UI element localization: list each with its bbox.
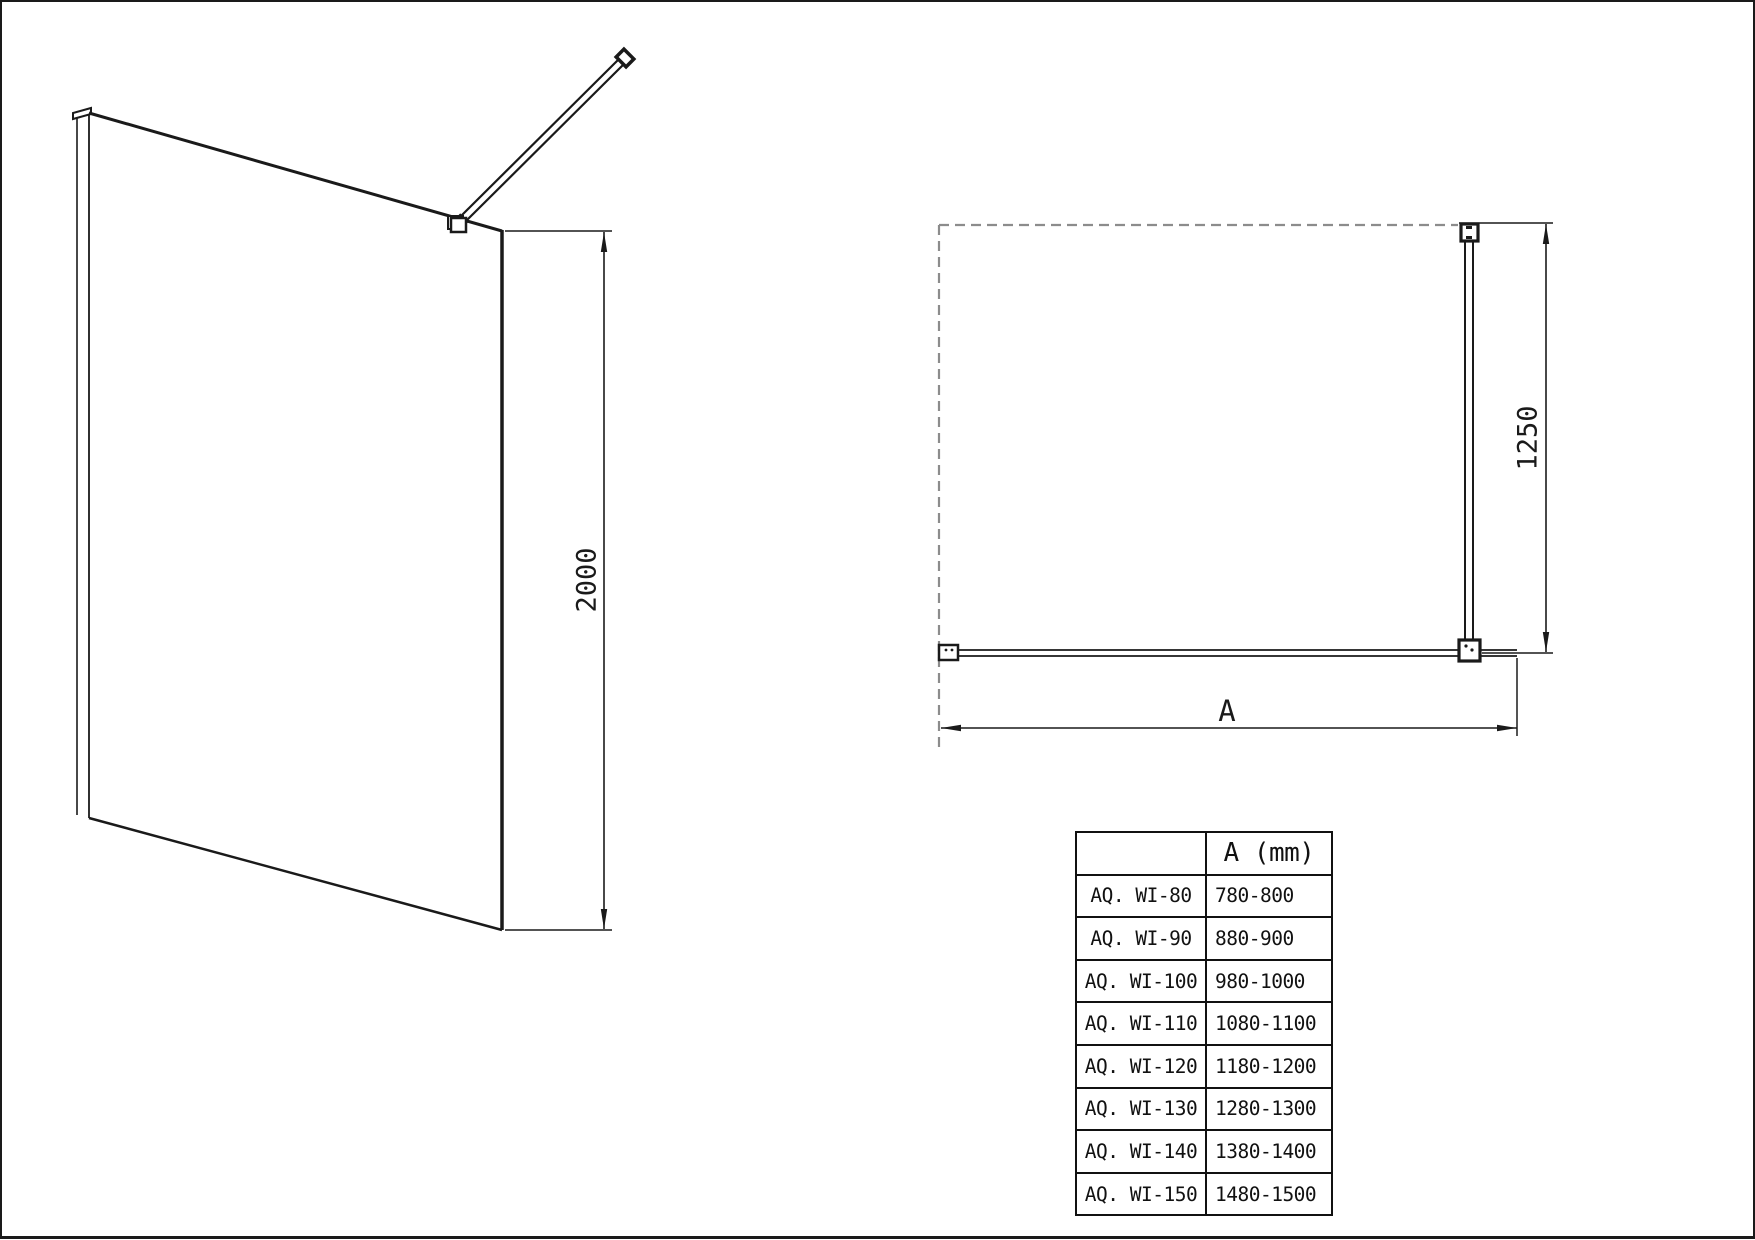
glass-panel-plan (941, 650, 1517, 656)
support-bar-wall-end-cap (616, 49, 634, 67)
wall-profile-screw-1 (945, 649, 948, 652)
table-header-row: A (mm) (1076, 832, 1332, 875)
wall-profile-plan (939, 645, 958, 660)
width-dimension: A (941, 658, 1517, 736)
depth-dim-label: 1250 (1513, 405, 1544, 470)
table-row: AQ. WI-130 1280-1300 (1076, 1088, 1332, 1131)
width-dim-arrow-right (1497, 725, 1517, 731)
glass-bracket-front (448, 216, 466, 232)
glass-bracket-plan (1459, 640, 1480, 661)
height-dim-arrow-down (601, 909, 607, 929)
technical-drawing-page: 2000 (0, 0, 1755, 1240)
depth-dim-arrow-up (1543, 224, 1549, 244)
table-header-model (1076, 832, 1206, 875)
table-cell-model: AQ. WI-140 (1076, 1130, 1206, 1173)
support-bar-lower-line (466, 61, 628, 222)
table-cell-range: 1080-1100 (1206, 1002, 1332, 1045)
glass-bottom-edge (89, 818, 502, 930)
table-cell-range: 880-900 (1206, 917, 1332, 960)
size-table: A (mm) AQ. WI-80 780-800 AQ. WI-90 880-9… (1075, 831, 1333, 1216)
height-dimension: 2000 (505, 231, 612, 930)
table-cell-model: AQ. WI-110 (1076, 1002, 1206, 1045)
glass-top-edge (89, 113, 502, 231)
table-cell-range: 1380-1400 (1206, 1130, 1332, 1173)
front-view: 2000 (73, 49, 634, 930)
tray-outline-dashed (939, 225, 1458, 752)
wall-bracket-plan (1461, 224, 1478, 241)
height-dim-arrow-up (601, 232, 607, 252)
drawing-canvas: 2000 (0, 0, 1755, 1240)
page-border (0, 1, 1755, 1238)
table-row: AQ. WI-120 1180-1200 (1076, 1045, 1332, 1088)
table-cell-model: AQ. WI-100 (1076, 960, 1206, 1003)
wall-profile-plan-body (939, 645, 958, 660)
table-cell-model: AQ. WI-80 (1076, 875, 1206, 918)
table-row: AQ. WI-140 1380-1400 (1076, 1130, 1332, 1173)
height-dim-label: 2000 (572, 547, 603, 612)
page-border-rect (1, 1, 1754, 1238)
wall-bracket-mark-bottom (1466, 236, 1472, 239)
table-cell-range: 1480-1500 (1206, 1173, 1332, 1216)
table-row: AQ. WI-110 1080-1100 (1076, 1002, 1332, 1045)
table-cell-model: AQ. WI-90 (1076, 917, 1206, 960)
glass-bracket-front-face (451, 218, 466, 232)
table-row: AQ. WI-150 1480-1500 (1076, 1173, 1332, 1216)
glass-bracket-plan-body (1459, 640, 1480, 661)
support-bar-plan (1465, 241, 1473, 641)
table-cell-range: 1280-1300 (1206, 1088, 1332, 1131)
support-bar-front (459, 49, 634, 223)
table-cell-range: 1180-1200 (1206, 1045, 1332, 1088)
table-row: AQ. WI-100 980-1000 (1076, 960, 1332, 1003)
table-header-size: A (mm) (1206, 832, 1332, 875)
glass-bracket-screw-2 (1470, 648, 1473, 651)
depth-dim-arrow-down (1543, 632, 1549, 652)
wall-bracket-mark-top (1466, 226, 1472, 229)
table-cell-model: AQ. WI-150 (1076, 1173, 1206, 1216)
glass-bracket-screw-1 (1464, 644, 1467, 647)
width-dim-label: A (1218, 694, 1235, 728)
table-cell-model: AQ. WI-130 (1076, 1088, 1206, 1131)
wall-profile-front (73, 108, 91, 818)
table-cell-model: AQ. WI-120 (1076, 1045, 1206, 1088)
table-row: AQ. WI-90 880-900 (1076, 917, 1332, 960)
table-cell-range: 780-800 (1206, 875, 1332, 918)
plan-view: 1250 A (939, 223, 1553, 752)
table-row: AQ. WI-80 780-800 (1076, 875, 1332, 918)
support-bar-upper-line (461, 56, 623, 217)
width-dim-arrow-left (941, 725, 961, 731)
wall-profile-screw-2 (951, 649, 954, 652)
glass-panel-front (89, 113, 502, 930)
table-cell-range: 980-1000 (1206, 960, 1332, 1003)
